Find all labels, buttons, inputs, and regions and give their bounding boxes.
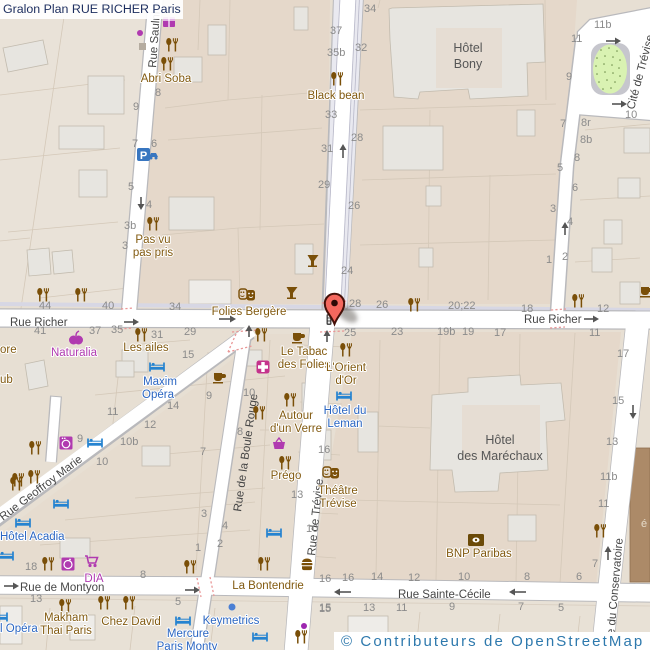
svg-text:13: 13 bbox=[30, 593, 42, 605]
svg-text:3: 3 bbox=[201, 508, 207, 520]
svg-text:Hôtel Acadia: Hôtel Acadia bbox=[0, 531, 65, 543]
svg-text:35: 35 bbox=[111, 324, 123, 336]
svg-text:ore: ore bbox=[0, 344, 17, 356]
svg-text:23: 23 bbox=[391, 326, 403, 338]
svg-text:29: 29 bbox=[318, 179, 330, 191]
svg-text:24: 24 bbox=[341, 265, 353, 277]
svg-text:© Contributeurs de OpenStreetM: © Contributeurs de OpenStreetMap bbox=[341, 633, 644, 650]
svg-text:Bony: Bony bbox=[454, 57, 483, 71]
svg-text:12: 12 bbox=[408, 572, 420, 584]
svg-text:11: 11 bbox=[589, 327, 600, 339]
svg-text:8r: 8r bbox=[581, 117, 591, 129]
svg-text:9: 9 bbox=[77, 433, 83, 445]
svg-text:29: 29 bbox=[184, 326, 196, 338]
svg-text:d'un Verre: d'un Verre bbox=[270, 423, 322, 435]
svg-text:15: 15 bbox=[182, 349, 194, 361]
svg-text:3: 3 bbox=[550, 203, 556, 215]
svg-text:Makham: Makham bbox=[44, 612, 88, 624]
svg-text:Hôtel: Hôtel bbox=[453, 41, 482, 55]
svg-text:Le Tabac: Le Tabac bbox=[281, 346, 328, 358]
svg-text:10b: 10b bbox=[120, 436, 138, 448]
svg-text:17: 17 bbox=[494, 327, 506, 339]
svg-text:6: 6 bbox=[576, 571, 582, 583]
svg-text:7: 7 bbox=[592, 558, 598, 570]
svg-text:20;22: 20;22 bbox=[448, 300, 476, 312]
svg-text:DIA: DIA bbox=[84, 573, 104, 585]
svg-text:Gralon Plan RUE RICHER Paris: Gralon Plan RUE RICHER Paris bbox=[3, 2, 181, 16]
svg-text:37: 37 bbox=[89, 325, 101, 337]
svg-text:Black bean: Black bean bbox=[308, 90, 365, 102]
svg-text:6: 6 bbox=[572, 182, 578, 194]
svg-text:8: 8 bbox=[574, 152, 580, 164]
svg-text:Opéra: Opéra bbox=[142, 389, 175, 401]
svg-text:5: 5 bbox=[557, 162, 563, 174]
svg-text:7: 7 bbox=[200, 446, 206, 458]
svg-text:34: 34 bbox=[169, 301, 181, 313]
svg-text:16: 16 bbox=[342, 572, 354, 584]
svg-text:31: 31 bbox=[321, 143, 333, 155]
svg-text:5: 5 bbox=[128, 181, 134, 193]
svg-text:18: 18 bbox=[25, 561, 37, 573]
svg-text:Rue Richer: Rue Richer bbox=[524, 314, 582, 326]
svg-text:Hôtel du: Hôtel du bbox=[324, 405, 367, 417]
svg-text:11: 11 bbox=[396, 602, 407, 614]
svg-text:Autour: Autour bbox=[279, 410, 313, 422]
svg-text:10: 10 bbox=[458, 571, 470, 583]
svg-text:3b: 3b bbox=[124, 220, 136, 232]
svg-text:25: 25 bbox=[344, 327, 356, 339]
svg-text:11: 11 bbox=[571, 33, 582, 45]
svg-text:37: 37 bbox=[330, 25, 342, 37]
svg-text:13: 13 bbox=[291, 489, 303, 501]
svg-text:7: 7 bbox=[518, 601, 524, 613]
svg-text:des Folies: des Folies bbox=[278, 359, 331, 371]
svg-text:Prégo: Prégo bbox=[271, 470, 302, 482]
svg-text:BNP Paribas: BNP Paribas bbox=[446, 548, 512, 560]
svg-text:32: 32 bbox=[355, 42, 367, 54]
svg-text:6: 6 bbox=[151, 138, 157, 150]
svg-text:Leman: Leman bbox=[327, 418, 362, 430]
svg-text:9: 9 bbox=[206, 390, 212, 402]
svg-text:28: 28 bbox=[351, 132, 363, 144]
svg-text:Chez David: Chez David bbox=[101, 616, 160, 628]
svg-text:7: 7 bbox=[132, 138, 138, 150]
svg-text:5: 5 bbox=[558, 602, 564, 614]
svg-text:5: 5 bbox=[175, 596, 181, 608]
svg-text:19b: 19b bbox=[437, 326, 455, 338]
svg-text:pas pris: pas pris bbox=[133, 247, 174, 259]
svg-text:26: 26 bbox=[376, 299, 388, 311]
svg-text:8b: 8b bbox=[580, 134, 592, 146]
svg-text:9: 9 bbox=[133, 101, 139, 113]
svg-text:44: 44 bbox=[39, 300, 51, 312]
svg-text:12: 12 bbox=[597, 303, 609, 315]
svg-text:11: 11 bbox=[598, 498, 609, 510]
svg-text:41: 41 bbox=[34, 325, 46, 337]
svg-text:Abri Soba: Abri Soba bbox=[141, 73, 192, 85]
svg-text:2: 2 bbox=[562, 251, 568, 263]
svg-text:28: 28 bbox=[349, 298, 361, 310]
svg-text:2: 2 bbox=[217, 538, 223, 550]
svg-text:10: 10 bbox=[243, 387, 255, 399]
svg-text:14: 14 bbox=[167, 400, 179, 412]
svg-text:8: 8 bbox=[140, 569, 146, 581]
svg-text:Folies Bergère: Folies Bergère bbox=[212, 306, 287, 318]
svg-text:Les ailes: Les ailes bbox=[123, 342, 169, 354]
svg-text:4: 4 bbox=[146, 199, 152, 211]
svg-text:33: 33 bbox=[325, 109, 337, 121]
svg-text:é: é bbox=[641, 518, 647, 530]
svg-text:16: 16 bbox=[319, 573, 331, 585]
svg-text:13: 13 bbox=[606, 436, 618, 448]
svg-text:Thai Paris: Thai Paris bbox=[40, 625, 92, 637]
svg-text:19: 19 bbox=[462, 326, 474, 338]
svg-text:Pas vu: Pas vu bbox=[135, 234, 170, 246]
svg-text:40: 40 bbox=[102, 300, 114, 312]
svg-text:10: 10 bbox=[625, 109, 637, 121]
svg-text:1: 1 bbox=[195, 542, 201, 554]
svg-text:31: 31 bbox=[151, 329, 163, 341]
svg-text:11b: 11b bbox=[600, 471, 618, 483]
svg-text:16: 16 bbox=[318, 444, 330, 456]
svg-text:34: 34 bbox=[364, 3, 376, 15]
svg-text:8: 8 bbox=[237, 426, 243, 438]
svg-text:Keymetrics: Keymetrics bbox=[203, 615, 260, 627]
svg-text:17: 17 bbox=[617, 348, 629, 360]
svg-text:La Bontendrie: La Bontendrie bbox=[232, 580, 304, 592]
svg-text:12: 12 bbox=[144, 419, 156, 431]
svg-text:Théâtre: Théâtre bbox=[318, 485, 358, 497]
svg-text:15: 15 bbox=[319, 603, 331, 615]
svg-text:Trévise: Trévise bbox=[319, 498, 356, 510]
svg-text:11: 11 bbox=[107, 406, 118, 418]
svg-text:18: 18 bbox=[521, 303, 533, 315]
svg-text:d'Or: d'Or bbox=[335, 375, 357, 387]
svg-text:Hôtel: Hôtel bbox=[485, 433, 514, 447]
svg-text:10: 10 bbox=[306, 523, 318, 535]
svg-text:P: P bbox=[140, 150, 147, 162]
svg-text:ub: ub bbox=[0, 374, 13, 386]
svg-text:14: 14 bbox=[371, 571, 383, 583]
svg-text:7: 7 bbox=[560, 118, 566, 130]
svg-text:Naturalia: Naturalia bbox=[51, 347, 98, 359]
svg-text:8: 8 bbox=[155, 87, 161, 99]
svg-text:des Maréchaux: des Maréchaux bbox=[457, 449, 543, 463]
svg-text:13: 13 bbox=[363, 602, 375, 614]
svg-text:3: 3 bbox=[122, 240, 128, 252]
svg-text:11b: 11b bbox=[594, 19, 612, 31]
svg-text:Rue Sainte-Cécile: Rue Sainte-Cécile bbox=[398, 589, 491, 601]
svg-text:4: 4 bbox=[567, 216, 573, 228]
svg-text:Maxim: Maxim bbox=[143, 376, 177, 388]
svg-text:35b: 35b bbox=[327, 47, 345, 59]
svg-text:l Opéra: l Opéra bbox=[0, 623, 38, 635]
svg-text:15: 15 bbox=[612, 395, 624, 407]
svg-text:Mercure: Mercure bbox=[167, 628, 209, 640]
svg-text:26: 26 bbox=[348, 200, 360, 212]
svg-text:9: 9 bbox=[566, 71, 572, 83]
svg-text:1: 1 bbox=[546, 254, 552, 266]
svg-text:10: 10 bbox=[96, 456, 108, 468]
svg-text:Paris Monty: Paris Monty bbox=[157, 641, 218, 650]
svg-text:4: 4 bbox=[222, 520, 228, 532]
svg-text:8: 8 bbox=[524, 571, 530, 583]
svg-text:9: 9 bbox=[449, 601, 455, 613]
svg-text:L'Orient: L'Orient bbox=[326, 362, 367, 374]
